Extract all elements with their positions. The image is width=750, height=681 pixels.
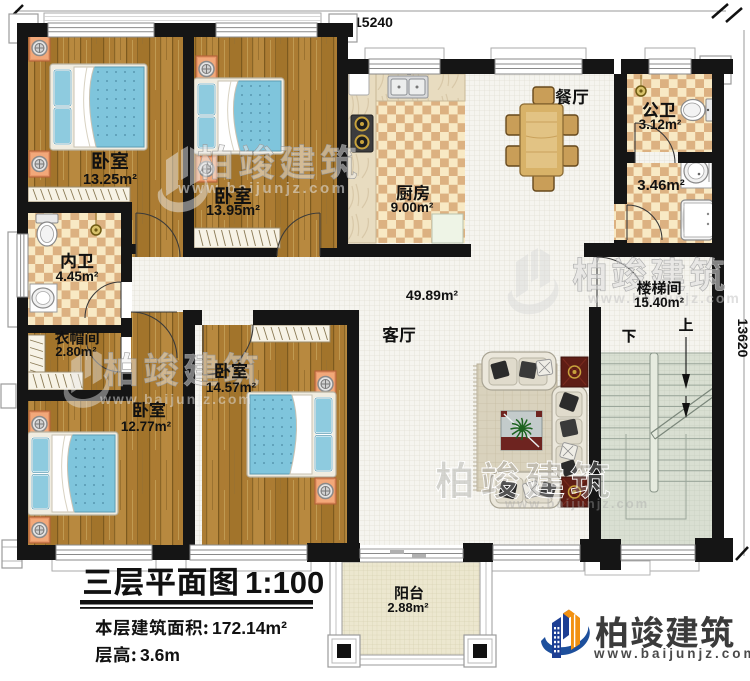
svg-text:12.77m²: 12.77m² [121,419,172,434]
svg-text:www.baijunjz.com: www.baijunjz.com [177,180,347,197]
svg-text:3.6m: 3.6m [140,645,180,665]
svg-text:3.12m²: 3.12m² [639,117,682,132]
svg-text:4.45m²: 4.45m² [56,269,99,284]
svg-text:13.95m²: 13.95m² [206,203,260,219]
svg-text:13.25m²: 13.25m² [83,172,137,188]
svg-text:14.57m²: 14.57m² [206,380,257,395]
svg-text:3.46m²: 3.46m² [637,177,685,194]
svg-text:1:100: 1:100 [245,565,324,600]
svg-text:49.89m²: 49.89m² [406,287,458,303]
svg-text:15.40m²: 15.40m² [634,295,685,310]
svg-text:www.baijunjz.com: www.baijunjz.com [504,496,649,511]
svg-text:2.88m²: 2.88m² [387,600,429,615]
svg-text:172.14m²: 172.14m² [212,618,287,638]
svg-text:13620: 13620 [735,319,750,358]
svg-text:www.baijunjz.com: www.baijunjz.com [593,646,750,661]
svg-text:2.80m²: 2.80m² [55,344,97,359]
svg-text:9.00m²: 9.00m² [391,200,434,215]
svg-text:15240: 15240 [354,14,393,30]
